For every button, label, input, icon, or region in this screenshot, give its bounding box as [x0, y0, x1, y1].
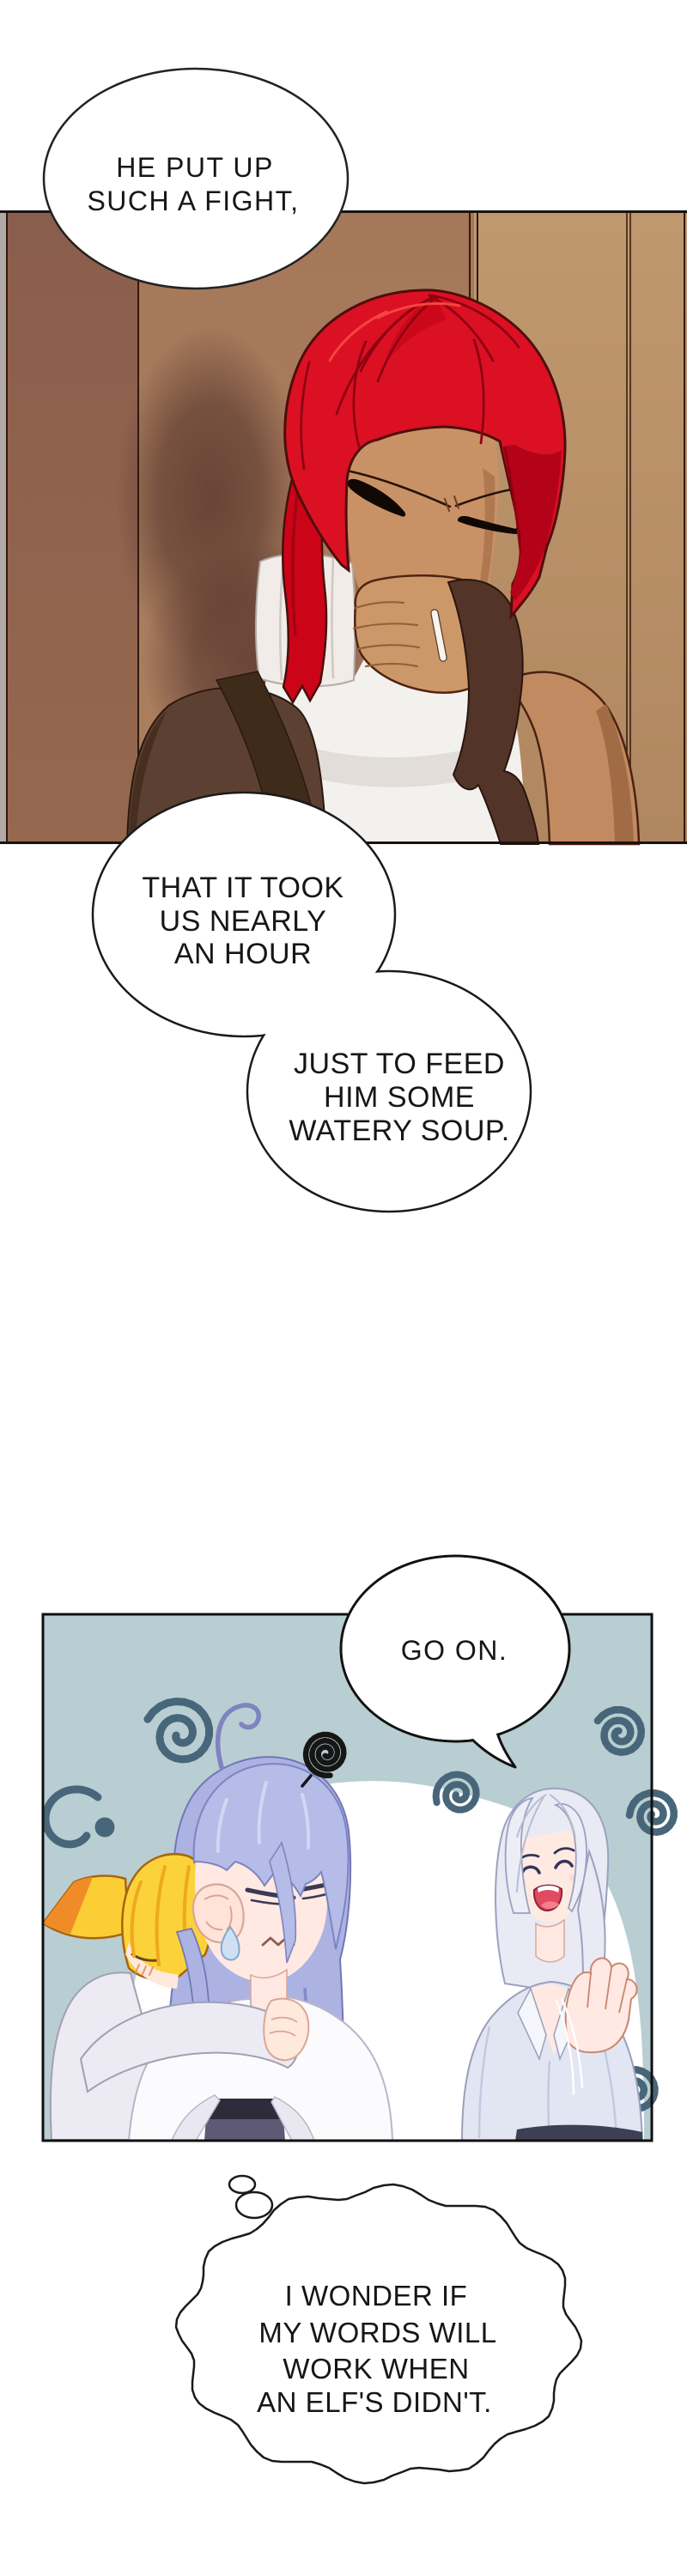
svg-text:HIM SOME: HIM SOME [324, 1081, 475, 1114]
svg-text:SUCH A FIGHT,: SUCH A FIGHT, [87, 185, 299, 216]
svg-text:GO ON.: GO ON. [401, 1635, 508, 1666]
svg-text:JUST TO FEED: JUST TO FEED [294, 1048, 505, 1080]
svg-text:HE PUT UP: HE PUT UP [116, 152, 274, 183]
svg-text:US NEARLY: US NEARLY [160, 905, 327, 938]
svg-text:I WONDER IF: I WONDER IF [285, 2280, 468, 2312]
svg-text:WATERY SOUP.: WATERY SOUP. [289, 1115, 509, 1147]
svg-text:AN ELF'S DIDN'T.: AN ELF'S DIDN'T. [257, 2386, 492, 2418]
svg-text:WORK WHEN: WORK WHEN [283, 2353, 469, 2385]
svg-text:MY WORDS WILL: MY WORDS WILL [258, 2317, 496, 2348]
svg-text:AN HOUR: AN HOUR [174, 938, 312, 970]
svg-text:THAT IT TOOK: THAT IT TOOK [142, 872, 343, 904]
